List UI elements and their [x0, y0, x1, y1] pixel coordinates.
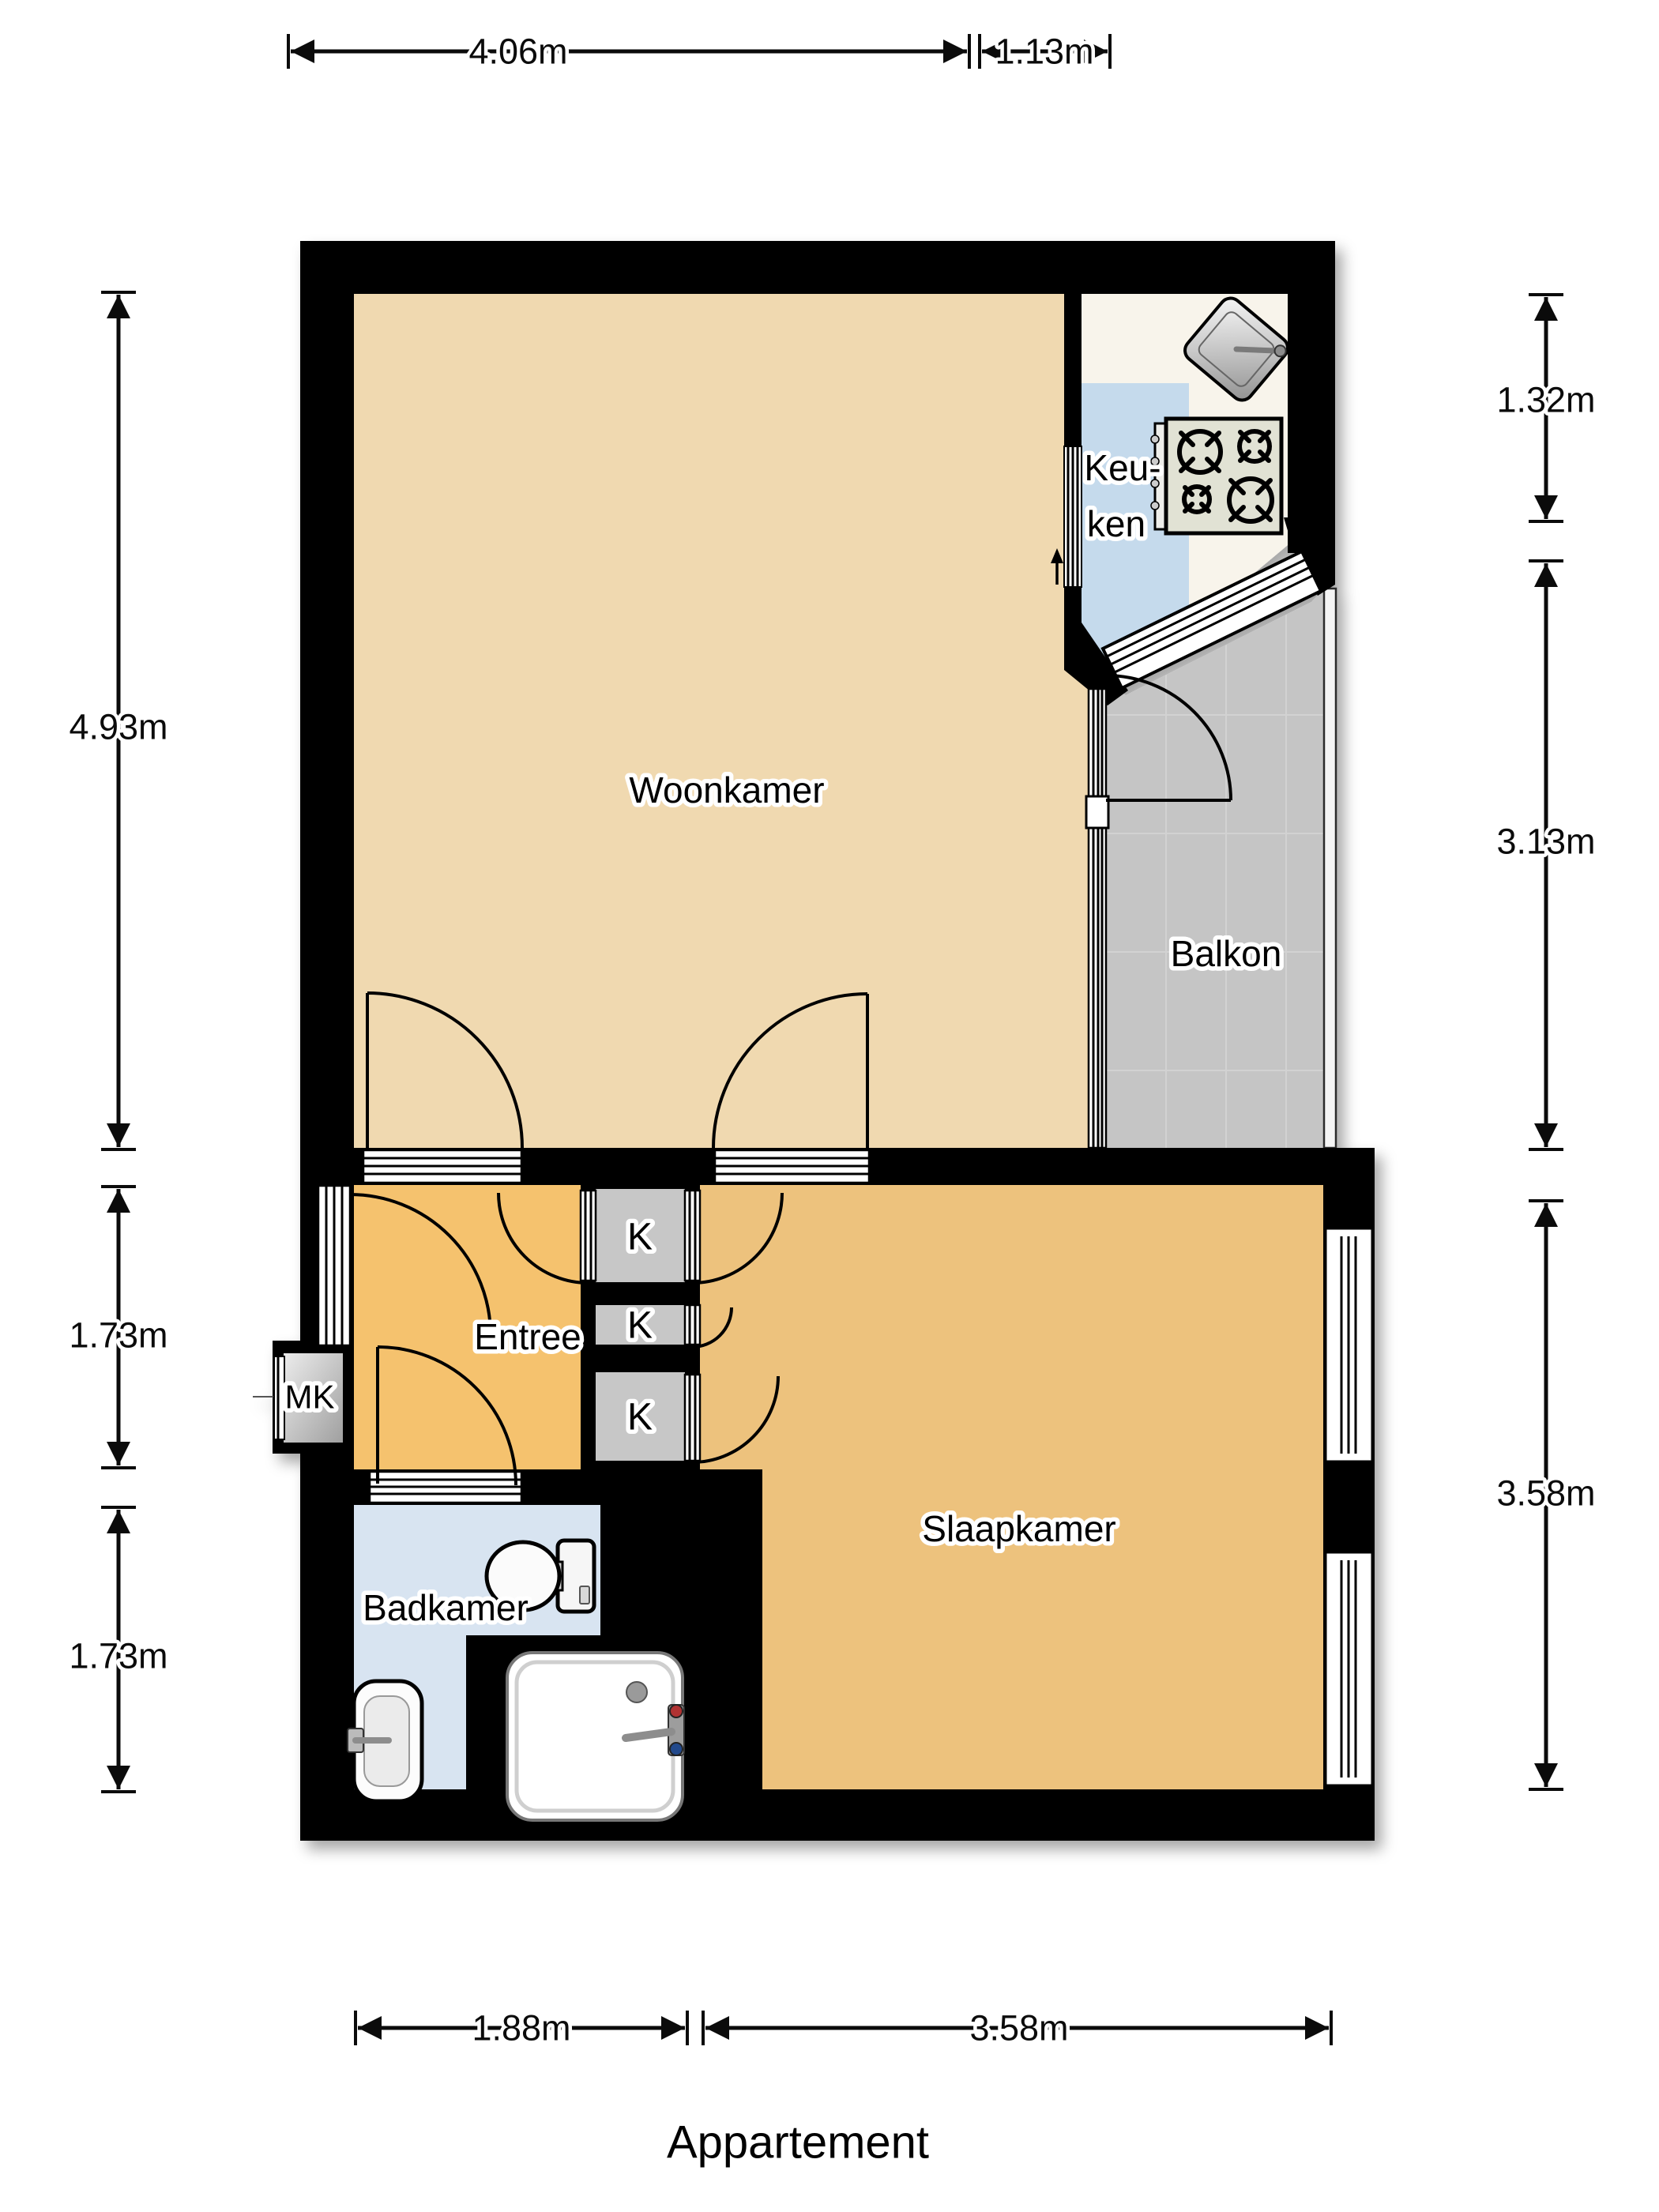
label-closet-k1: K	[627, 1217, 653, 1258]
dim-left-c: 1.73m	[69, 1507, 167, 1792]
label-mk: MK	[285, 1379, 335, 1416]
dim-label-left-a: 4.93m	[69, 707, 167, 747]
floor-plan-drawing: Woonkamer Keu- ken Balkon Entree MK K K …	[0, 0, 1659, 2212]
shower-icon	[507, 1653, 684, 1820]
dim-label-right-a: 1.32m	[1496, 380, 1595, 420]
wall-keuken-right	[1288, 241, 1335, 553]
room-woonkamer	[354, 294, 1089, 1148]
window-balkon-wall	[1086, 689, 1108, 1148]
label-closet-k2: K	[627, 1305, 653, 1347]
dim-label-top-b: 1.13m	[995, 32, 1093, 72]
threshold-woonkamer-left	[363, 1150, 521, 1183]
threshold-badkamer	[370, 1472, 521, 1503]
dim-bottom-b: 3.58m	[703, 2008, 1331, 2048]
stove-icon	[1151, 419, 1281, 533]
dim-left-b: 1.73m	[69, 1187, 167, 1468]
dim-right-c: 3.58m	[1496, 1201, 1595, 1789]
balkon-door-jamb	[1086, 796, 1108, 828]
wall-bottom	[300, 1789, 1375, 1841]
dim-label-right-c: 3.58m	[1496, 1473, 1595, 1514]
threshold-woonkamer-right	[715, 1150, 869, 1183]
dim-left-a: 4.93m	[69, 292, 167, 1149]
room-slaapkamer	[700, 1185, 1323, 1789]
washbasin-icon	[348, 1681, 422, 1801]
front-door	[318, 1186, 350, 1345]
dim-label-left-b: 1.73m	[69, 1315, 167, 1356]
label-keuken-line1: Keu-	[1084, 447, 1161, 488]
dim-label-bottom-a: 1.88m	[472, 2008, 570, 2048]
window-slaapkamer-top	[1326, 1228, 1372, 1461]
floor-plan-page: Woonkamer Keu- ken Balkon Entree MK K K …	[0, 0, 1659, 2212]
dim-right-a: 1.32m	[1496, 295, 1595, 521]
label-keuken-line2: ken	[1087, 503, 1145, 544]
label-badkamer: Badkamer	[363, 1587, 529, 1628]
balkon-railing	[1324, 589, 1336, 1148]
threshold-keuken	[1064, 446, 1082, 587]
wall-top	[303, 241, 1335, 294]
dim-bottom-a: 1.88m	[355, 2008, 687, 2048]
dim-right-b: 3.13m	[1496, 561, 1595, 1149]
dim-top-a: 4.06m	[288, 32, 969, 72]
label-closet-k3: K	[627, 1397, 653, 1439]
dim-label-top-a: 4.06m	[468, 32, 567, 72]
window-slaapkamer-bottom	[1326, 1552, 1372, 1785]
wall-left	[300, 241, 354, 1841]
label-balkon: Balkon	[1171, 933, 1282, 974]
label-entree: Entree	[474, 1316, 581, 1357]
label-slaapkamer: Slaapkamer	[922, 1508, 1115, 1549]
dim-top-b: 1.13m	[980, 32, 1110, 72]
dim-label-bottom-b: 3.58m	[969, 2008, 1068, 2048]
dim-label-right-b: 3.13m	[1496, 822, 1595, 862]
dim-label-left-c: 1.73m	[69, 1636, 167, 1676]
label-woonkamer: Woonkamer	[629, 769, 824, 811]
page-title: Appartement	[667, 2117, 929, 2169]
